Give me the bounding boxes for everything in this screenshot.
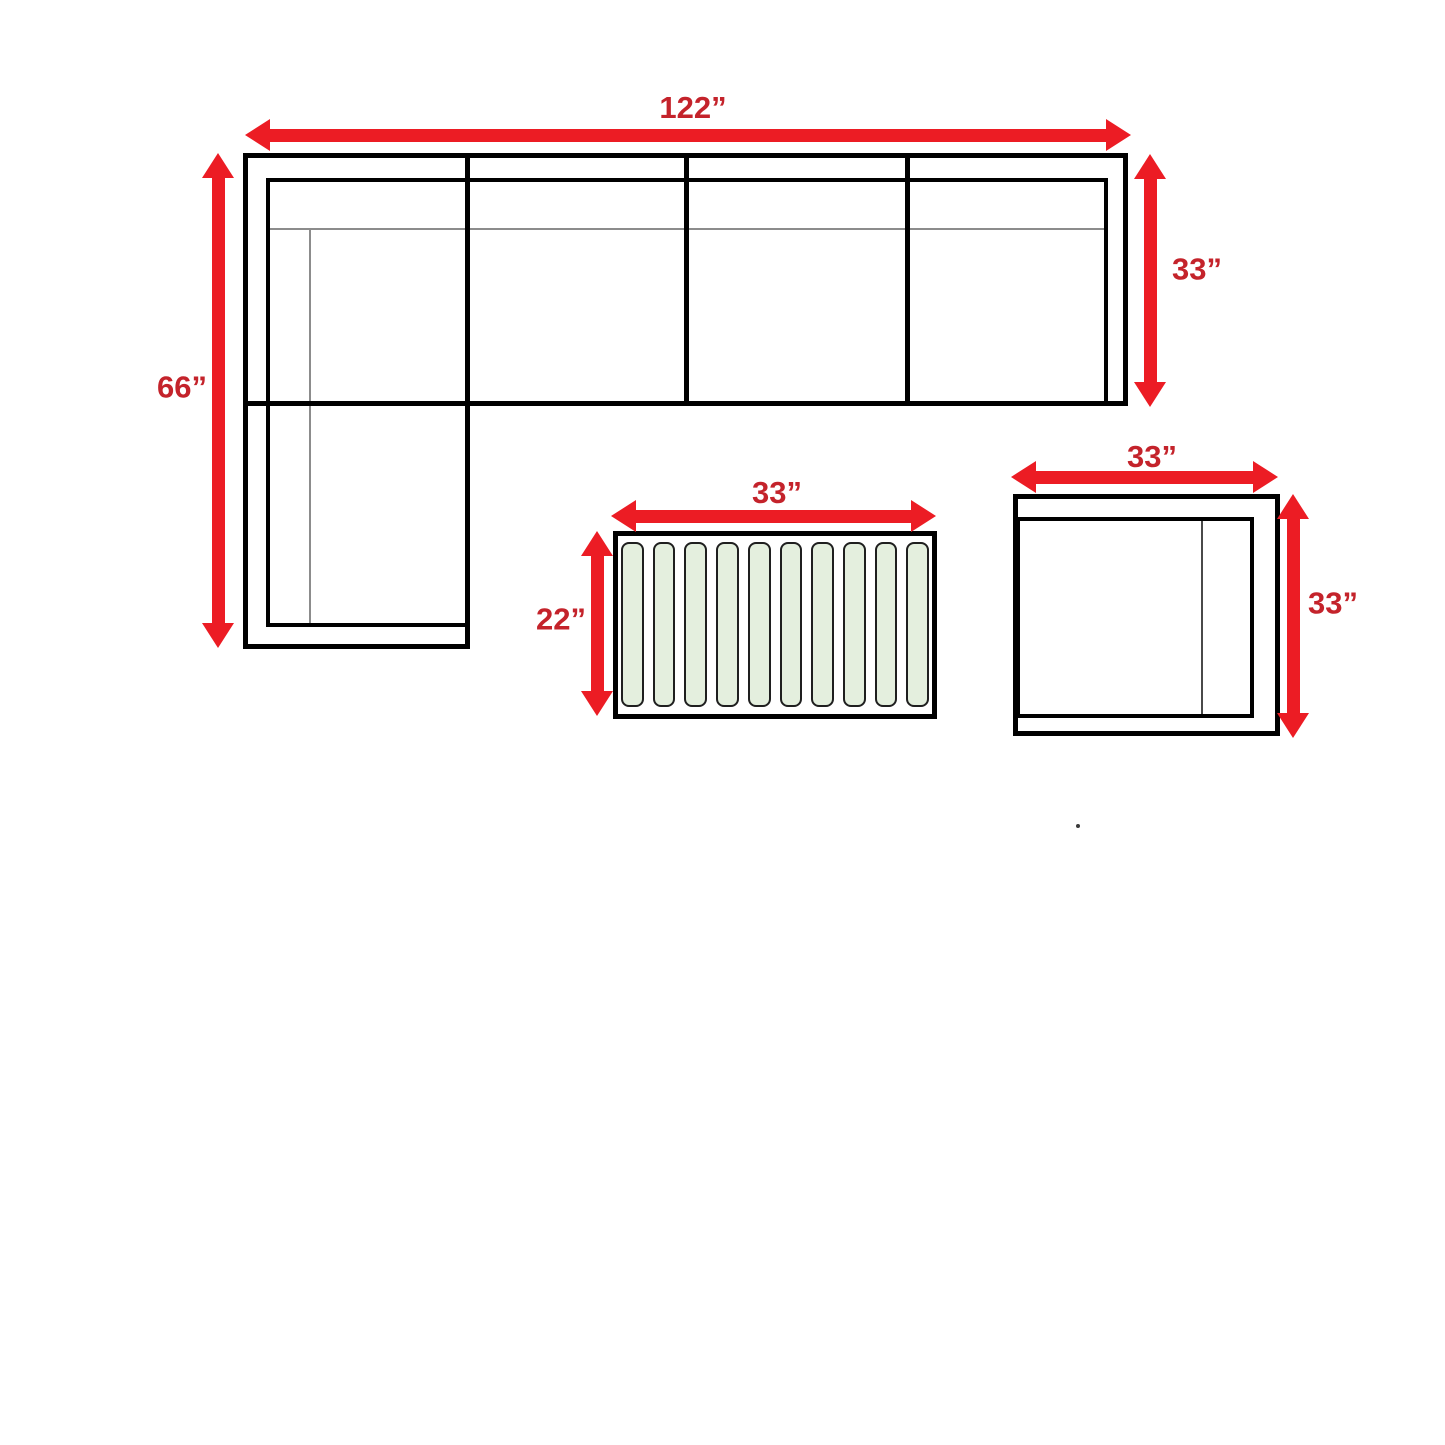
coffee-table-slat (811, 542, 834, 707)
arrow-head-down-icon (202, 623, 234, 648)
arrow-head-left-icon (1011, 461, 1036, 493)
arrow-head-up-icon (1134, 154, 1166, 179)
sofa-width-label: 122” (659, 92, 726, 123)
arrow-head-up-icon (1277, 494, 1309, 519)
sofa-seat-chaise (266, 406, 467, 627)
sofa-section-divider-1 (465, 153, 470, 406)
coffee-table-slat (621, 542, 644, 707)
sofa-height-label: 66” (157, 372, 207, 403)
arrow-shaft (634, 510, 913, 523)
arrow-head-up-icon (202, 153, 234, 178)
chair-seat (1016, 517, 1254, 718)
arrow-head-down-icon (1277, 713, 1309, 738)
arrow-head-right-icon (1253, 461, 1278, 493)
arrow-shaft (212, 176, 225, 625)
stray-dot (1076, 824, 1080, 828)
arrow-head-right-icon (911, 500, 936, 532)
chair-width-label: 33” (1127, 441, 1177, 472)
coffee-table-slat (906, 542, 929, 707)
coffee-table-width-label: 33” (752, 477, 802, 508)
sofa-section-divider-3 (905, 153, 910, 406)
coffee-table-slat (684, 542, 707, 707)
coffee-table-slat (716, 542, 739, 707)
sofa-depth-label: 33” (1172, 254, 1222, 285)
coffee-table-slat (780, 542, 803, 707)
chair-depth-label: 33” (1308, 588, 1358, 619)
coffee-table-slat (875, 542, 898, 707)
coffee-table-slat (843, 542, 866, 707)
coffee-table-depth-label: 22” (536, 604, 586, 635)
arrow-head-down-icon (581, 691, 613, 716)
arrow-shaft (591, 554, 604, 693)
sofa-section-divider-2 (684, 153, 689, 406)
coffee-table-slat (653, 542, 676, 707)
arrow-head-left-icon (611, 500, 636, 532)
coffee-table-slats (621, 542, 929, 707)
arrow-shaft (1287, 517, 1300, 715)
arrow-shaft (268, 129, 1106, 142)
coffee-table-slat (748, 542, 771, 707)
furniture-dimension-diagram: 122” 66” 33” 33” 22” 33” (0, 0, 1445, 1445)
arrow-head-up-icon (581, 531, 613, 556)
arrow-head-left-icon (245, 119, 270, 151)
chair-seat-line (1201, 521, 1203, 714)
arrow-head-down-icon (1134, 382, 1166, 407)
arrow-shaft (1144, 177, 1157, 384)
arrow-head-right-icon (1106, 119, 1131, 151)
